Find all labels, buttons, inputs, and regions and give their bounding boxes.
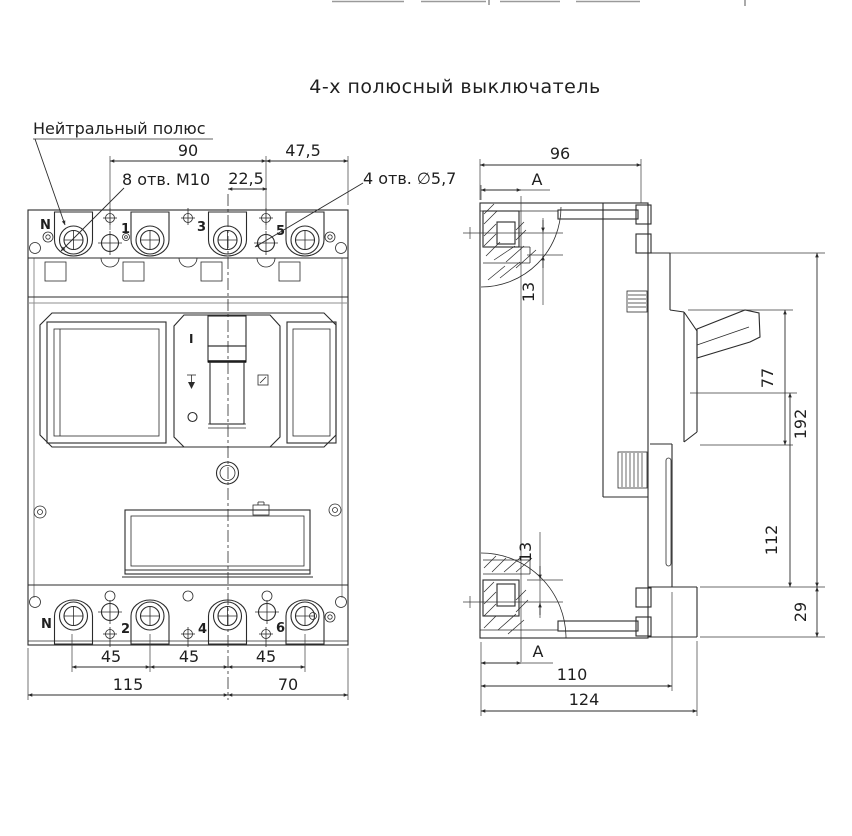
dim-124: 124	[569, 690, 600, 709]
section-detail-bottom: 13	[463, 532, 566, 638]
front-lower-face	[34, 462, 341, 577]
test-button-icon	[258, 375, 268, 385]
dim-70: 70	[278, 675, 298, 694]
section-label-bottom: А	[533, 642, 544, 661]
trip-arrow-icon	[187, 375, 196, 389]
terminal-screw	[209, 212, 247, 256]
callout-m10: 8 отв. М10	[122, 170, 210, 189]
technical-drawing-page: 4-х полюсный выключатель	[0, 0, 852, 836]
mounting-hole	[98, 231, 122, 255]
dim-110: 110	[557, 665, 588, 684]
dim-13-bottom: 13	[516, 542, 535, 562]
right-window	[287, 322, 336, 443]
dim-13-top: 13	[519, 282, 538, 302]
pole-label-bottom: 4	[198, 622, 207, 637]
dim-47-5: 47,5	[285, 141, 321, 160]
side-seam-slot	[666, 458, 671, 566]
dim-115: 115	[113, 675, 144, 694]
breaker-drawing: 4-х полюсный выключатель	[0, 0, 852, 836]
dim-96: 96	[550, 144, 570, 163]
side-body-outline	[480, 203, 648, 638]
left-window	[47, 322, 166, 443]
pole-label-bottom: 2	[121, 622, 130, 637]
side-bottom-lugs	[558, 588, 651, 636]
drawing-title: 4-х полюсный выключатель	[309, 76, 600, 98]
pole-label-bottom: 6	[276, 621, 285, 636]
front-upper-face	[28, 258, 348, 303]
side-top-lugs	[558, 205, 651, 253]
pole-label-bottom: N	[41, 617, 52, 632]
side-view: 13 13	[463, 144, 825, 716]
terminal-screw	[131, 212, 169, 256]
section-detail-top: 13	[463, 204, 563, 305]
front-cover: I	[40, 313, 336, 447]
mounting-hole	[254, 231, 278, 255]
dim-45: 45	[101, 647, 121, 666]
section-label-top: А	[532, 170, 543, 189]
hatching	[484, 556, 532, 634]
dim-45: 45	[256, 647, 276, 666]
mounting-hole	[98, 600, 279, 624]
callout-neutral-pole: Нейтральный полюс	[33, 119, 206, 138]
pole-label-top: N	[40, 218, 51, 233]
pole-label-top: 1	[121, 222, 130, 237]
dim-45: 45	[179, 647, 199, 666]
dim-192: 192	[791, 409, 810, 440]
terminal-screw	[286, 212, 324, 256]
callout-d57: 4 отв. ∅5,7	[363, 169, 456, 188]
terminal-screw	[55, 600, 93, 644]
handle-on-mark: I	[189, 332, 193, 346]
dim-29: 29	[791, 602, 810, 622]
toggle-handle	[208, 316, 246, 428]
dim-22-5: 22,5	[228, 169, 264, 188]
dim-112: 112	[762, 525, 781, 556]
vent-grille	[618, 291, 647, 488]
handle-off-mark	[188, 413, 197, 422]
dim-90: 90	[178, 141, 198, 160]
top-crop-artifacts	[332, 0, 745, 6]
hatching	[484, 204, 536, 280]
plate-latch	[253, 502, 269, 515]
pole-label-top: 3	[197, 220, 206, 235]
front-bottom-terminals: N 2 4 6	[28, 585, 348, 647]
terminal-screw	[209, 600, 247, 644]
label-plate	[122, 502, 313, 577]
terminal-screw	[55, 212, 93, 256]
side-toggle-handle	[697, 310, 760, 358]
front-view: N 1 3 5	[28, 119, 456, 700]
front-top-terminals: N 1 3 5	[28, 208, 348, 258]
dim-77: 77	[758, 368, 777, 388]
